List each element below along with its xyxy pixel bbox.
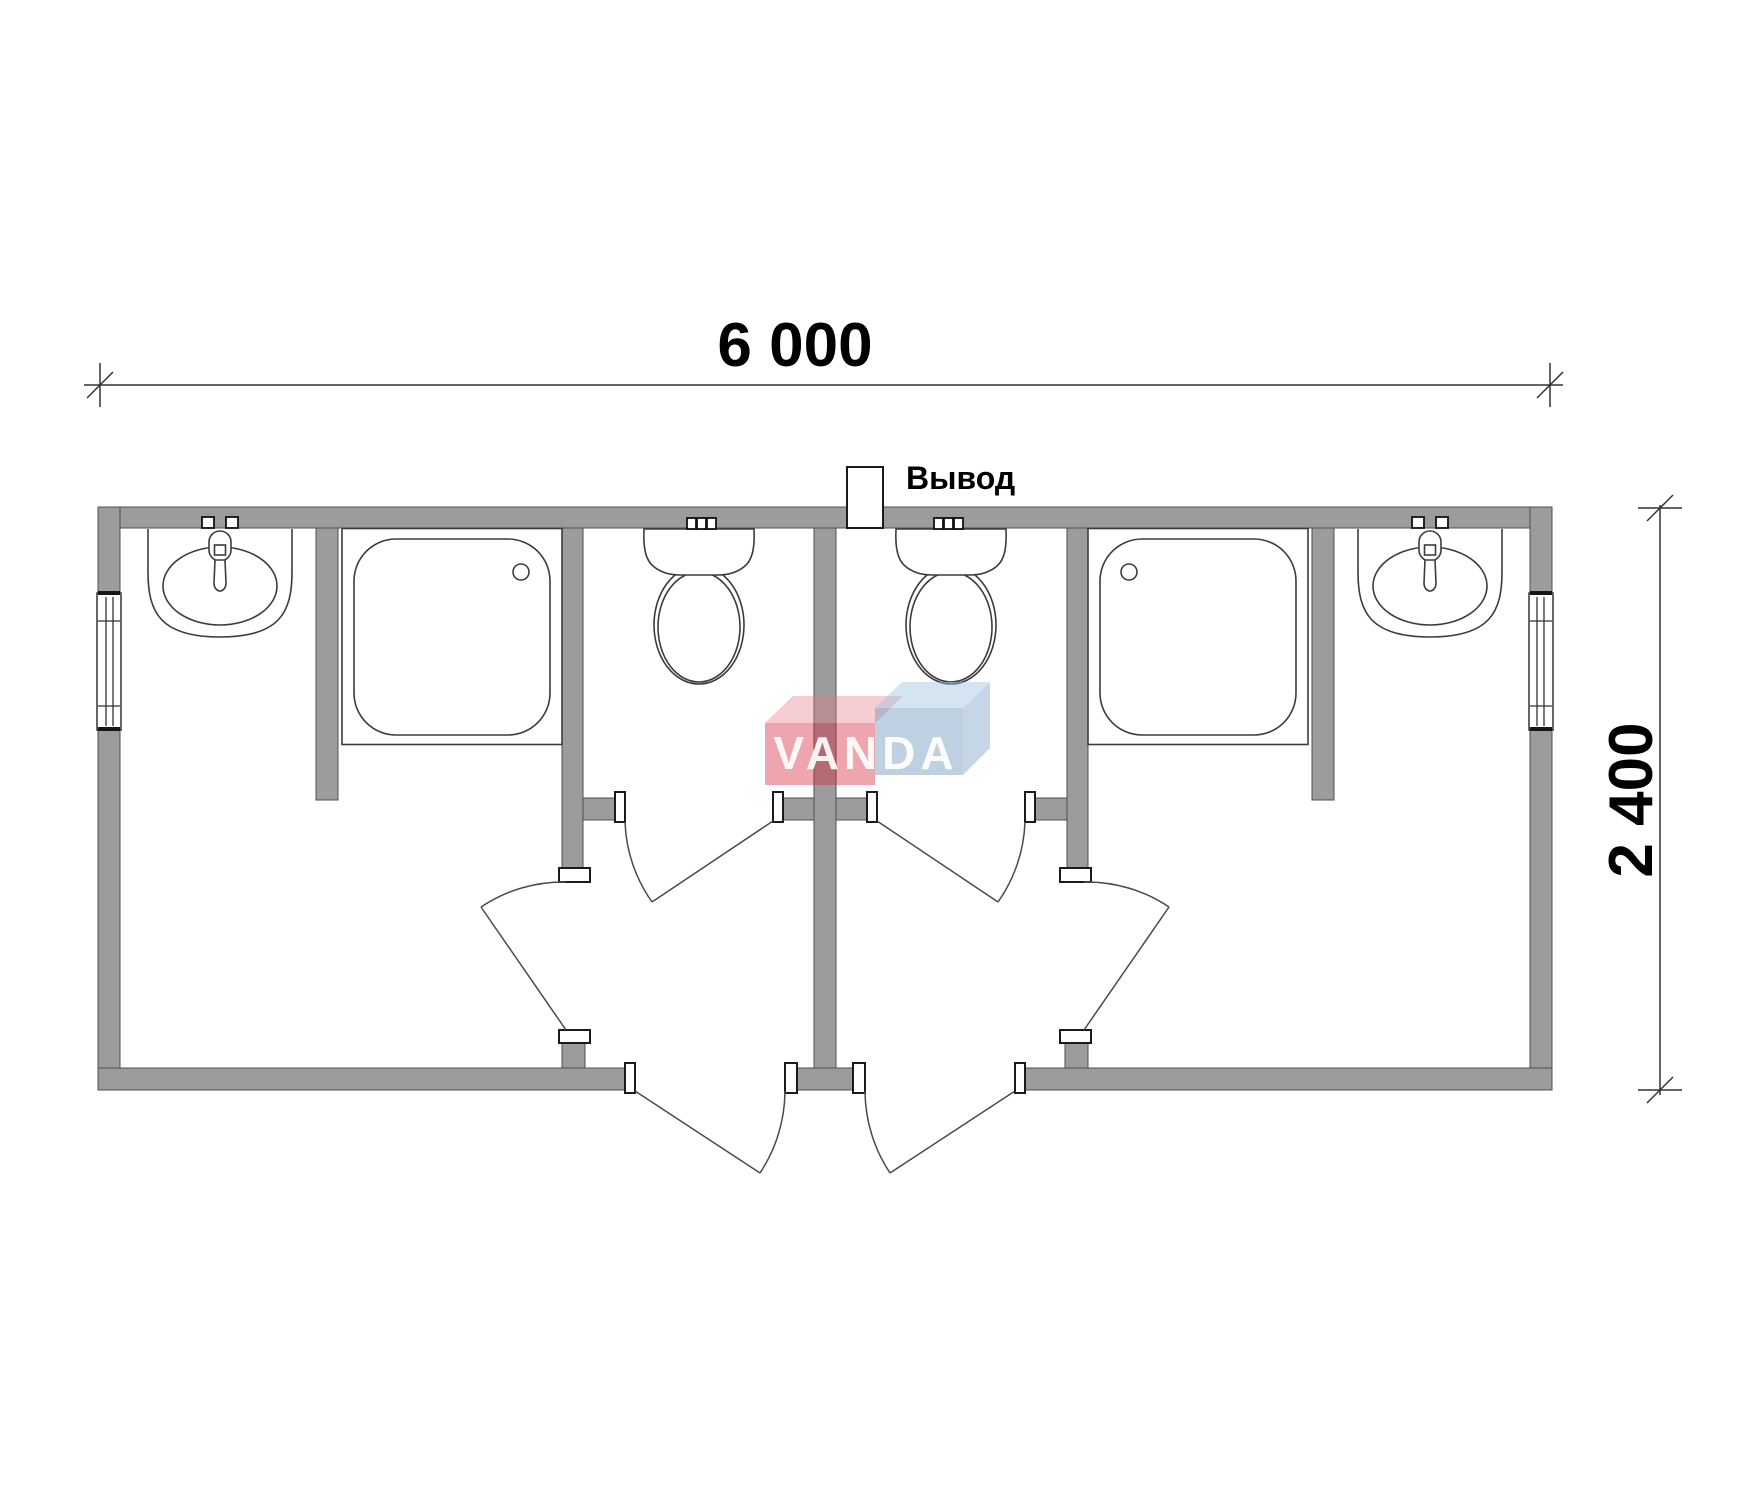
height-dimension: 2 400 — [1597, 495, 1682, 1103]
bottom-wall-center — [797, 1068, 853, 1090]
width-dimension-label: 6 000 — [717, 311, 872, 380]
vanda-watermark: VANDA — [765, 682, 990, 785]
central-wall — [814, 528, 836, 1068]
right-unit — [836, 507, 1553, 1173]
width-dimension: 6 000 — [84, 311, 1563, 407]
floor-plan-canvas: Вывод 6 000 2 400 VANDA — [0, 0, 1763, 1487]
outlet-box-icon — [847, 467, 883, 528]
watermark-text: VANDA — [773, 727, 958, 779]
height-dimension-label: 2 400 — [1597, 722, 1666, 877]
floor-plan-drawing: Вывод 6 000 2 400 VANDA — [0, 0, 1763, 1487]
left-unit — [97, 507, 814, 1173]
top-wall — [98, 507, 1552, 528]
outlet-label: Вывод — [906, 460, 1015, 496]
